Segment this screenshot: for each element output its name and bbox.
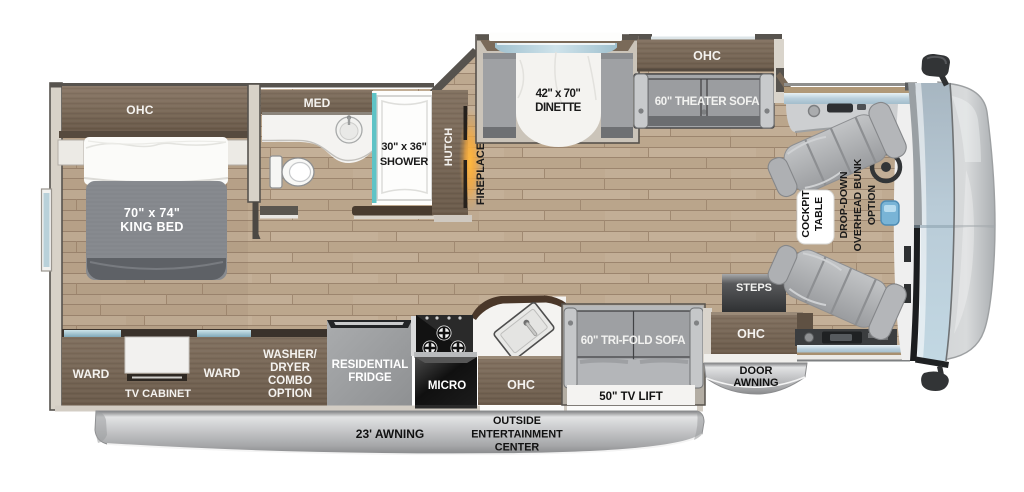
svg-text:KING BED: KING BED [120, 220, 184, 234]
svg-text:OPTION: OPTION [268, 388, 312, 400]
svg-text:ENTERTAINMENT: ENTERTAINMENT [471, 429, 563, 441]
svg-text:CENTER: CENTER [495, 442, 540, 454]
svg-text:FRIDGE: FRIDGE [348, 372, 392, 384]
svg-text:23' AWNING: 23' AWNING [356, 427, 424, 441]
svg-text:OPTION: OPTION [866, 185, 878, 225]
svg-text:RESIDENTIAL: RESIDENTIAL [332, 359, 409, 371]
svg-text:OHC: OHC [693, 49, 721, 63]
svg-text:OHC: OHC [507, 378, 535, 392]
svg-text:COMBO: COMBO [268, 375, 312, 387]
svg-text:WARD: WARD [204, 366, 241, 380]
svg-text:TABLE: TABLE [813, 197, 825, 231]
svg-text:OHC: OHC [126, 103, 154, 117]
svg-text:COCKPIT: COCKPIT [800, 190, 812, 238]
svg-text:FIREPLACE: FIREPLACE [475, 143, 487, 205]
svg-text:SHOWER: SHOWER [380, 156, 429, 168]
svg-text:30" x 36": 30" x 36" [381, 141, 426, 153]
svg-text:DROP-DOWN: DROP-DOWN [838, 171, 850, 238]
svg-text:OHC: OHC [737, 327, 765, 341]
svg-text:DINETTE: DINETTE [535, 102, 582, 114]
svg-text:STEPS: STEPS [736, 282, 772, 294]
svg-text:WARD: WARD [73, 367, 110, 381]
svg-text:AWNING: AWNING [733, 377, 778, 389]
svg-text:MED: MED [304, 96, 331, 110]
svg-text:WASHER/: WASHER/ [263, 349, 317, 361]
svg-text:MICRO: MICRO [428, 380, 466, 392]
svg-text:70" x 74": 70" x 74" [124, 206, 180, 220]
svg-text:HUTCH: HUTCH [443, 128, 455, 167]
svg-text:OVERHEAD BUNK: OVERHEAD BUNK [852, 158, 864, 251]
svg-text:DOOR: DOOR [740, 365, 773, 377]
svg-text:TV CABINET: TV CABINET [125, 388, 191, 400]
svg-text:50" TV LIFT: 50" TV LIFT [599, 391, 663, 403]
svg-text:OUTSIDE: OUTSIDE [493, 415, 541, 427]
svg-text:60" TRI-FOLD SOFA: 60" TRI-FOLD SOFA [581, 335, 686, 347]
svg-text:60" THEATER SOFA: 60" THEATER SOFA [655, 96, 760, 108]
svg-text:42" x 70": 42" x 70" [536, 88, 581, 100]
svg-text:DRYER: DRYER [270, 362, 311, 374]
